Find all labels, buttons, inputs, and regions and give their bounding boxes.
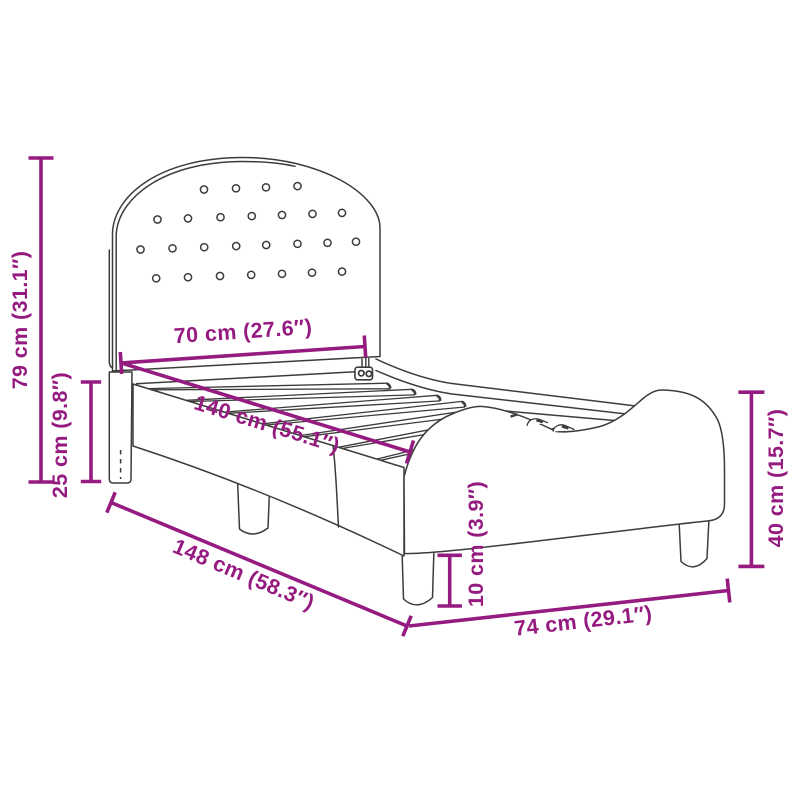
- svg-text:40 cm (15.7″): 40 cm (15.7″): [764, 409, 788, 548]
- svg-text:10 cm (3.9″): 10 cm (3.9″): [464, 481, 488, 607]
- svg-text:148 cm (58.3″): 148 cm (58.3″): [169, 534, 317, 615]
- svg-text:25 cm (9.8″): 25 cm (9.8″): [48, 372, 72, 498]
- svg-text:79 cm (31.1″): 79 cm (31.1″): [8, 251, 32, 390]
